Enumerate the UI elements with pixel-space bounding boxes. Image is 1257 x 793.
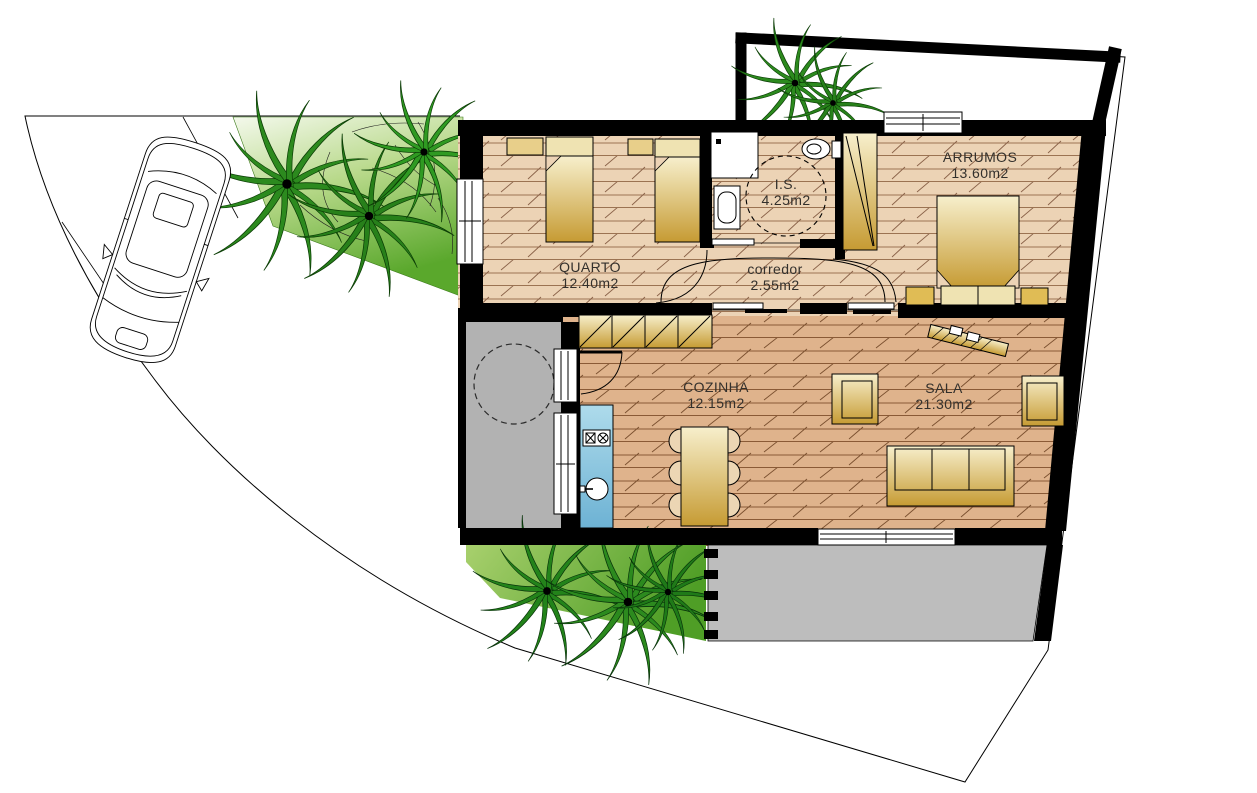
window-patio-lower	[554, 413, 577, 514]
wall-top	[458, 120, 1106, 136]
sofa	[887, 446, 1014, 506]
single-bed	[655, 139, 700, 242]
nightstand	[1021, 288, 1048, 305]
window-quarto-left	[457, 179, 483, 264]
floor-plan-page: QUARTO 12.40m2 I.S. 4.25m2 corredor 2.55…	[0, 0, 1257, 793]
room-area: 13.60m2	[943, 165, 1017, 181]
room-area: 12.40m2	[559, 275, 621, 291]
garden-top	[196, 80, 498, 297]
room-label-quarto: QUARTO 12.40m2	[559, 259, 621, 291]
room-area: 4.25m2	[761, 192, 810, 208]
room-name: I.S.	[761, 176, 810, 192]
wall-bottom-right	[955, 528, 1062, 545]
armchair	[832, 374, 878, 424]
double-bed	[937, 196, 1019, 305]
kitchen-counter	[580, 405, 613, 528]
dining-table	[681, 427, 728, 526]
dining-table-set	[669, 427, 740, 526]
nightstand	[906, 287, 934, 305]
wall-quarto-is	[700, 132, 712, 248]
wall-bottom-left	[460, 528, 818, 545]
room-label-corredor: corredor 2.55m2	[747, 261, 802, 293]
washbasin	[714, 186, 740, 229]
room-label-cozinha: COZINHA 12.15m2	[683, 379, 749, 411]
wardrobe	[843, 133, 877, 250]
room-label-is: I.S. 4.25m2	[761, 176, 810, 208]
floor-plan-drawing	[0, 0, 1257, 793]
window-arrumos-top	[884, 112, 962, 133]
toilet	[802, 139, 841, 159]
patio	[466, 322, 563, 528]
kitchen-cabinets	[579, 315, 712, 348]
shower	[711, 132, 758, 178]
room-label-arrumos: ARRUMOS 13.60m2	[943, 149, 1017, 181]
room-name: COZINHA	[683, 379, 749, 395]
room-name: ARRUMOS	[943, 149, 1017, 165]
nightstand	[507, 138, 543, 155]
room-label-sala: SALA 21.30m2	[915, 380, 972, 412]
stove	[583, 430, 610, 446]
nightstand	[628, 139, 653, 155]
room-name: corredor	[747, 261, 802, 277]
room-area: 2.55m2	[747, 277, 802, 293]
terrace	[704, 545, 1063, 641]
room-area: 21.30m2	[915, 396, 972, 412]
room-name: SALA	[915, 380, 972, 396]
window-patio-upper	[554, 349, 577, 402]
armchair	[1022, 376, 1064, 426]
wall-patio-left	[458, 322, 466, 528]
room-area: 12.15m2	[683, 395, 749, 411]
single-bed	[546, 137, 593, 242]
window-sala-bottom	[818, 529, 955, 545]
room-name: QUARTO	[559, 259, 621, 275]
wall-corridor-stub	[800, 303, 847, 314]
car	[73, 126, 247, 375]
